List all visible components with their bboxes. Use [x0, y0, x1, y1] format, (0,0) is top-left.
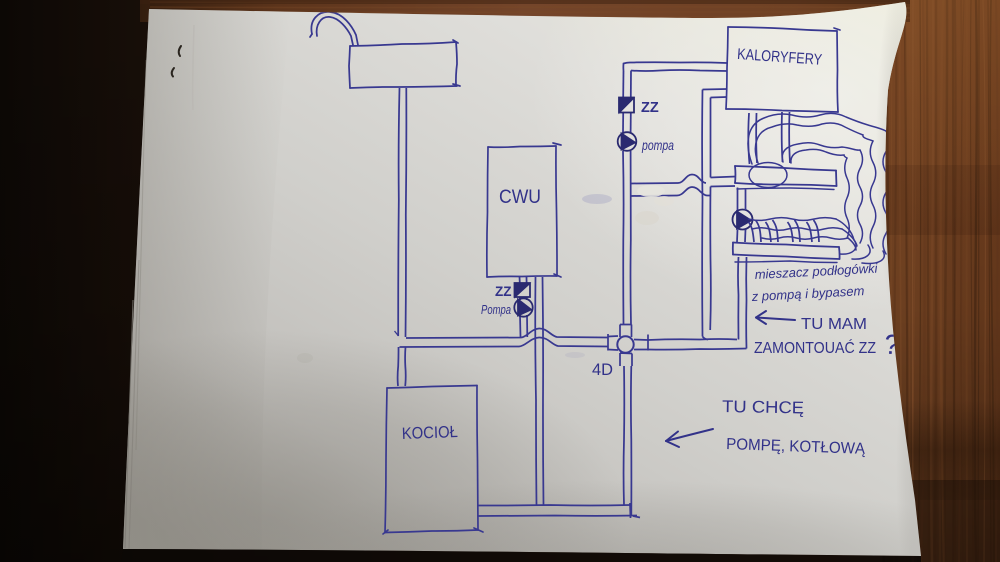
- svg-text:pompa: pompa: [641, 137, 674, 153]
- svg-text:ZZ: ZZ: [495, 284, 512, 299]
- svg-text:TU MAM: TU MAM: [801, 316, 867, 333]
- svg-text:Pompa: Pompa: [481, 303, 511, 317]
- svg-text:KOCIOŁ: KOCIOŁ: [402, 423, 459, 443]
- svg-text:4D: 4D: [592, 361, 613, 379]
- svg-text:ZAMONTOUAĆ ZZ: ZAMONTOUAĆ ZZ: [754, 338, 876, 357]
- svg-text:TU CHCĘ: TU CHCĘ: [722, 397, 804, 417]
- svg-text:CWU: CWU: [499, 187, 541, 208]
- svg-text:ZZ: ZZ: [641, 100, 659, 116]
